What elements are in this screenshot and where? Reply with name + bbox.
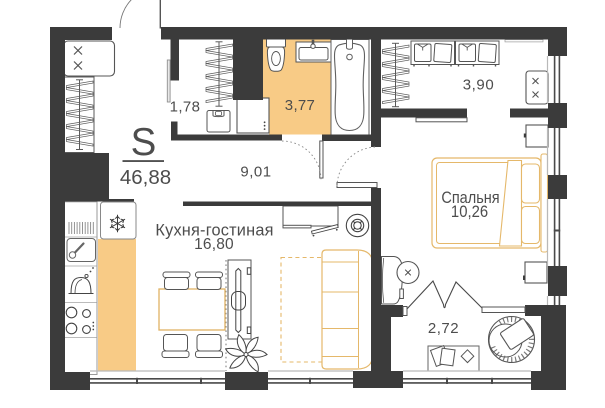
svg-text:9,01: 9,01 [240, 164, 271, 181]
svg-text:16,80: 16,80 [194, 236, 234, 253]
svg-text:2,72: 2,72 [428, 320, 459, 337]
svg-text:46,88: 46,88 [120, 166, 171, 189]
svg-text:10,26: 10,26 [451, 203, 488, 221]
svg-text:3,77: 3,77 [285, 97, 315, 114]
svg-text:3,90: 3,90 [463, 76, 495, 93]
svg-text:1,78: 1,78 [170, 98, 201, 115]
svg-text:S: S [131, 121, 157, 164]
